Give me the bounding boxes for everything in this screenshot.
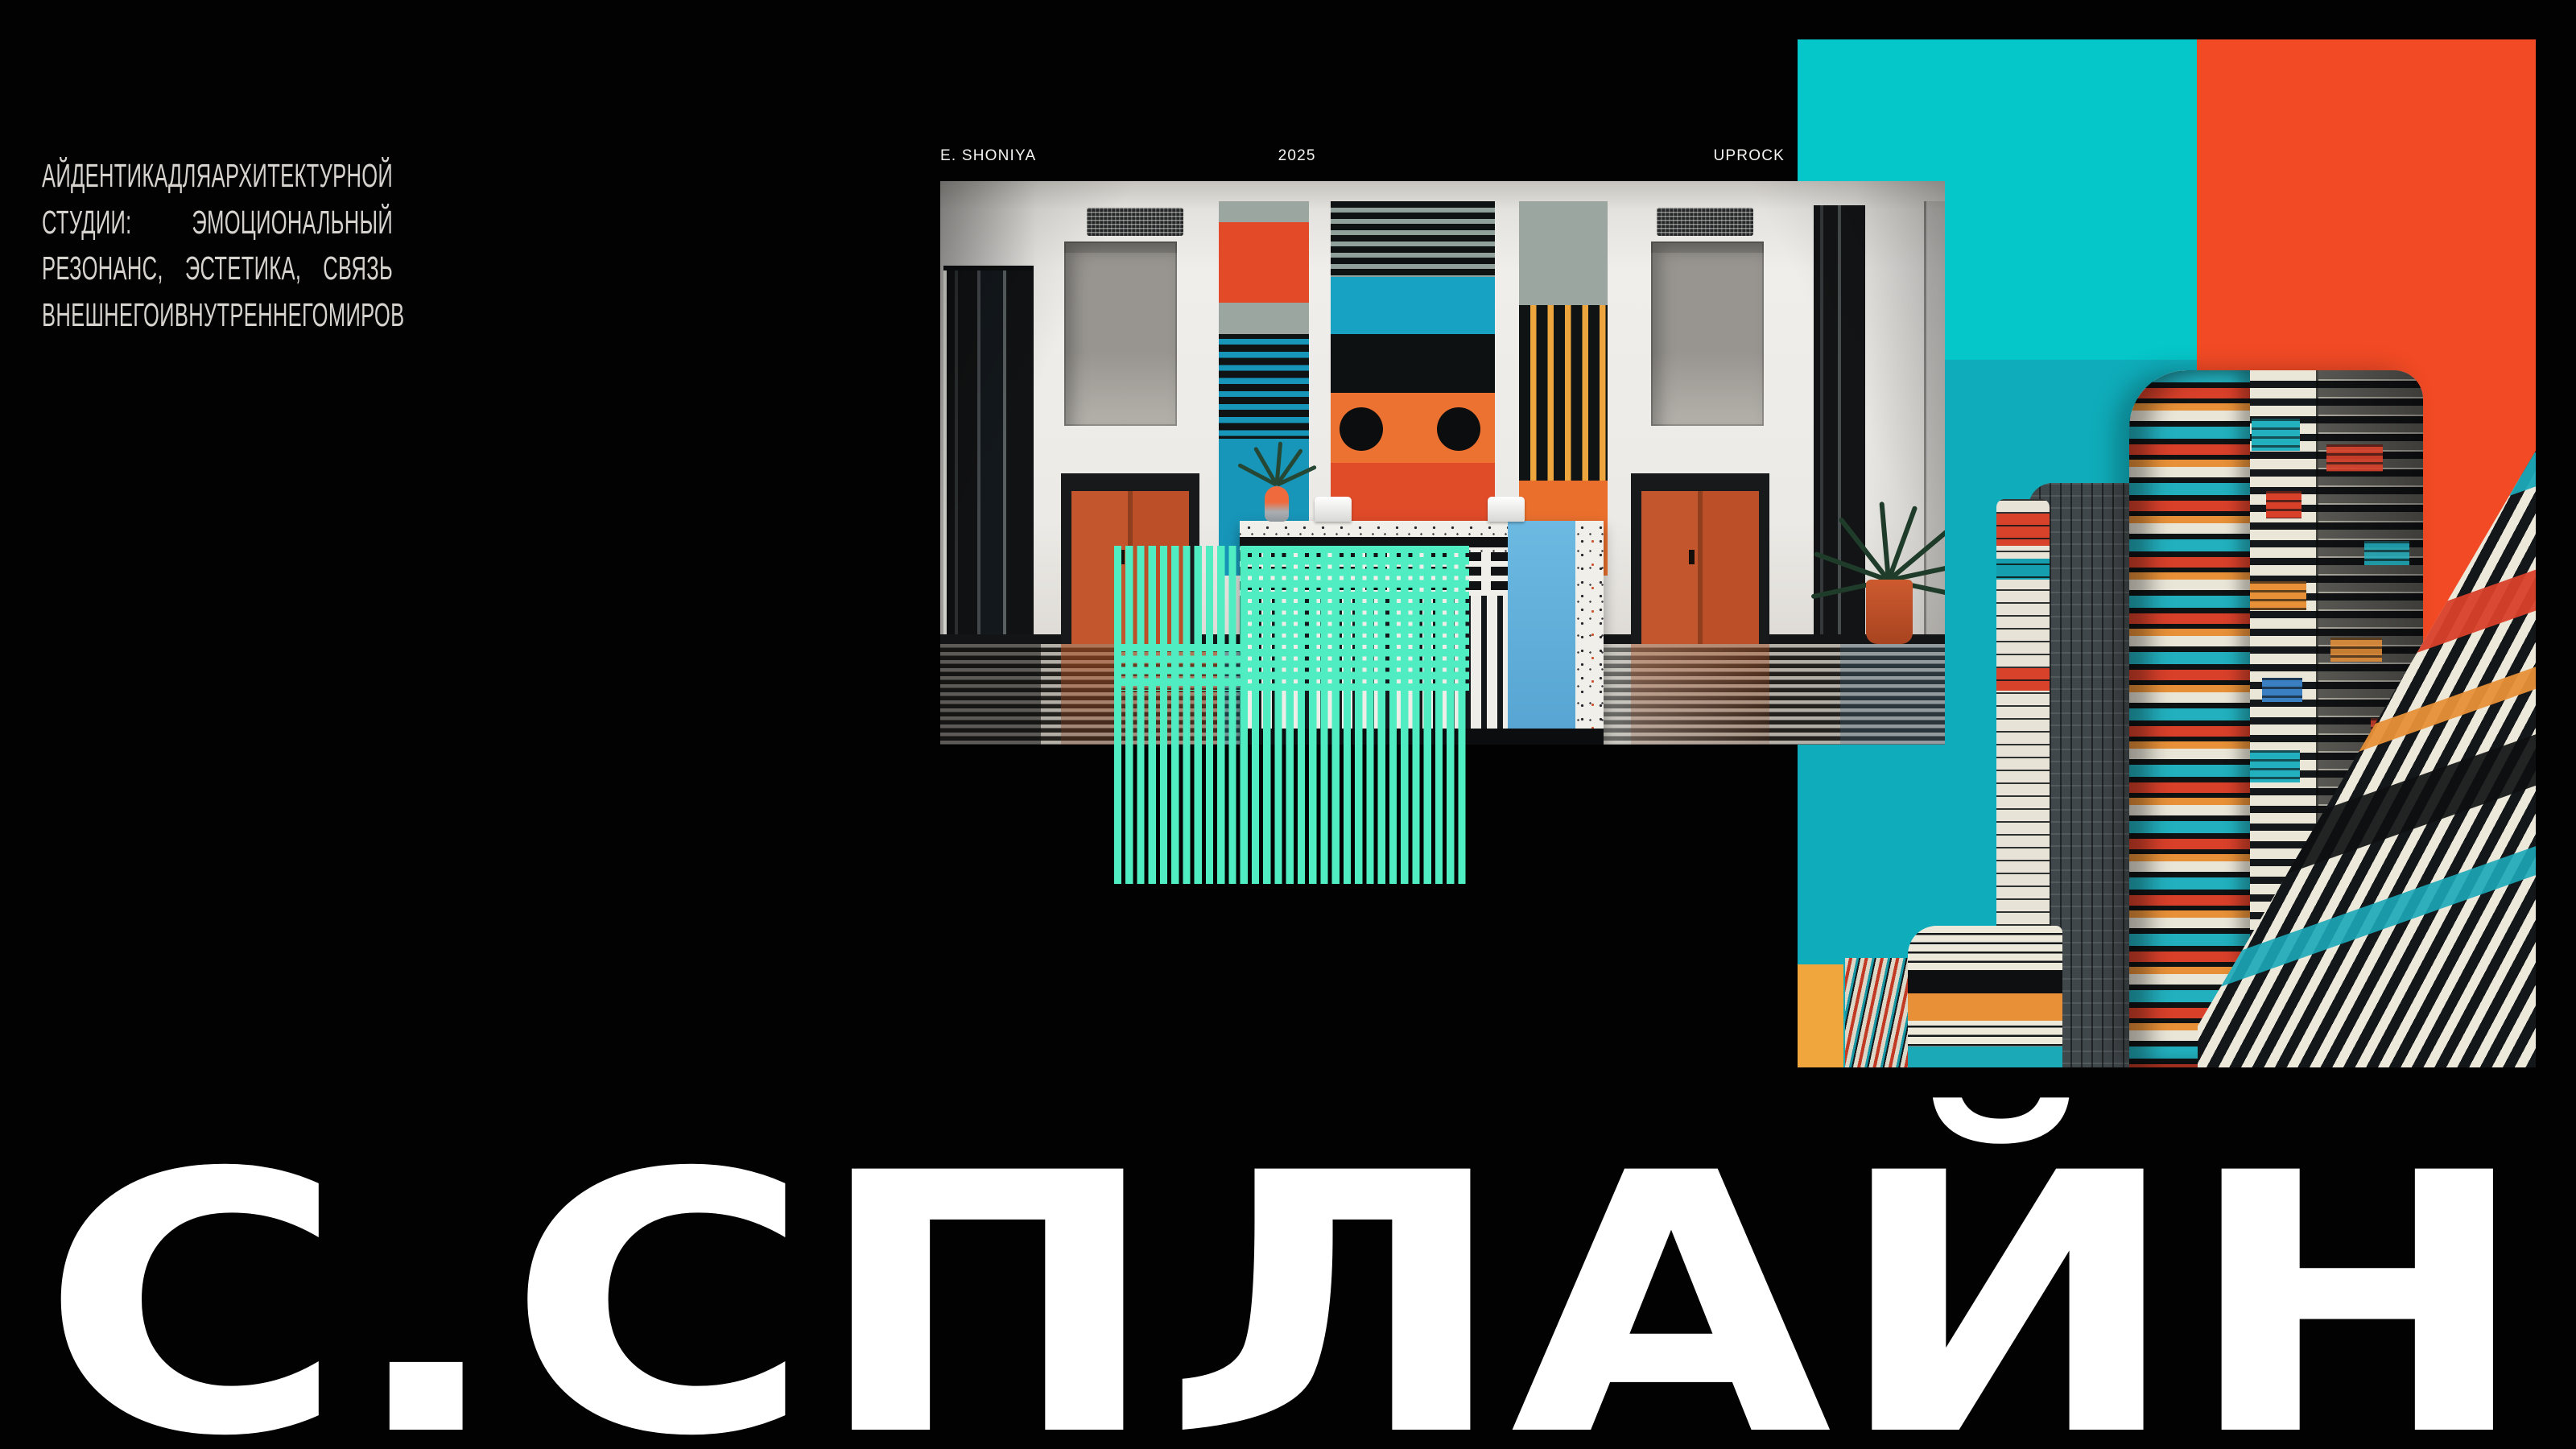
- intro-line-2: СТУДИИ: ЭМОЦИОНАЛЬНЫЙ: [42, 200, 393, 246]
- intro-word: ЭМОЦИОНАЛЬНЫЙ: [192, 200, 393, 246]
- credits-bar: E. SHONIYA 2025 UPROCK: [940, 147, 1785, 170]
- tower-balcony-stack: [2129, 370, 2250, 1067]
- intro-line-4: ВНЕШНЕГО И ВНУТРЕННЕГО МИРОВ: [42, 292, 393, 339]
- intro-word: СВЯЗЬ: [323, 246, 393, 292]
- intro-word: РЕЗОНАНС,: [42, 246, 163, 292]
- intro-word: МИРОВ: [328, 292, 405, 339]
- mint-horizontal-bars-lower: [1114, 644, 1241, 691]
- page-title: С.СПЛАЙН: [40, 1127, 2533, 1449]
- credit-author: E. SHONIYA: [940, 147, 1036, 165]
- credit-studio: UPROCK: [1714, 147, 1785, 165]
- intro-line-1: АЙДЕНТИКА ДЛЯ АРХИТЕКТУРНОЙ: [42, 153, 393, 200]
- intro-paragraph: АЙДЕНТИКА ДЛЯ АРХИТЕКТУРНОЙ СТУДИИ: ЭМОЦ…: [42, 153, 393, 343]
- intro-word: СТУДИИ:: [42, 200, 132, 246]
- credit-year: 2025: [1278, 147, 1316, 165]
- intro-word: ДЛЯ: [168, 153, 211, 200]
- mint-grid-overlay: [1114, 546, 1469, 884]
- intro-word: АРХИТЕКТУРНОЙ: [212, 153, 393, 200]
- intro-word: ВНУТРЕННЕГО: [175, 292, 328, 339]
- intro-word: И: [159, 292, 175, 339]
- intro-word: ВНЕШНЕГО: [42, 292, 159, 339]
- mint-horizontal-bars: [1241, 546, 1469, 691]
- poster-page: АЙДЕНТИКА ДЛЯ АРХИТЕКТУРНОЙ СТУДИИ: ЭМОЦ…: [0, 0, 2576, 1449]
- intro-word: АЙДЕНТИКА: [42, 153, 168, 200]
- intro-line-3: РЕЗОНАНС, ЭСТЕТИКА, СВЯЗЬ: [42, 246, 393, 292]
- building-rounded-slab: [1908, 926, 2062, 1067]
- intro-word: ЭСТЕТИКА,: [185, 246, 301, 292]
- yellow-block: [1798, 964, 1843, 1067]
